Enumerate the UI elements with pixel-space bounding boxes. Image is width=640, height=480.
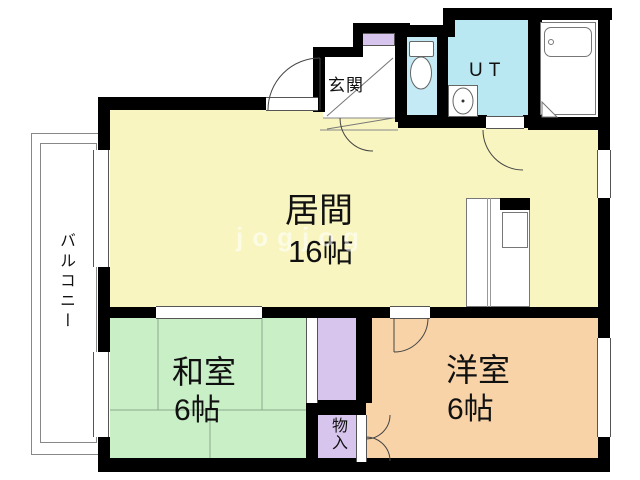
western-room-label: 洋室 [446,354,510,386]
storage-door-arc-top [366,415,390,439]
bathtub-faucet [549,40,554,45]
bath-door-mark [542,102,557,117]
western-door-arc [394,318,428,352]
japanese-room-size: 6帖 [174,396,221,426]
storage-label: 物入 [329,417,345,451]
hall-door-arc [340,118,373,151]
utility-sink-drain [462,100,465,103]
toilet-bowl [411,57,432,89]
entrance-step-diagonal [327,118,393,129]
western-room-size: 6帖 [447,395,494,425]
utility-label: UT [469,61,506,80]
utility-door-arc [483,130,523,170]
entrance-label: 玄関 [328,77,364,94]
storage-door-arc-bottom [366,437,390,461]
watermark: jogjog [236,222,368,253]
floor-plan: バルコニー [0,0,640,480]
entrance-door-arc [268,58,320,110]
japanese-room-label: 和室 [172,356,236,388]
